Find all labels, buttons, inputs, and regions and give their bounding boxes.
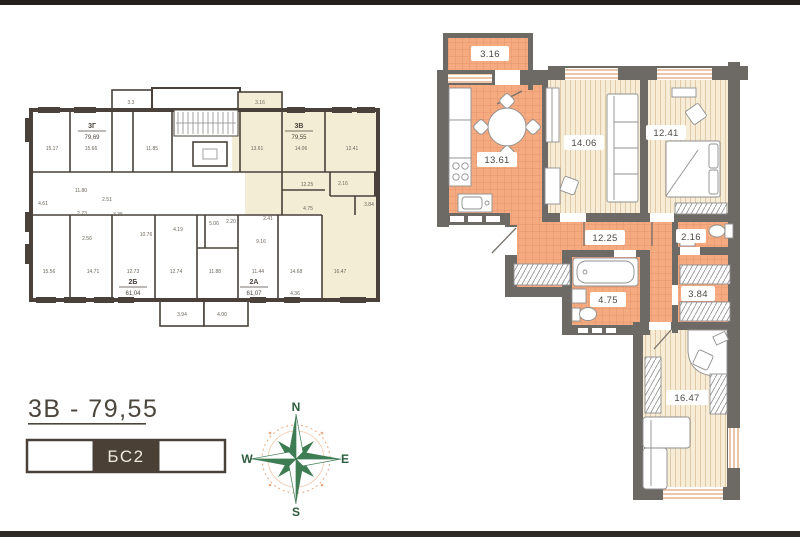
mini-label: 4.36 [290,291,300,297]
mini-label: 2.56 [82,236,92,242]
mini-label: 2.51 [102,197,112,203]
mini-stairs [174,110,238,136]
label-kitchen: 13.61 [484,155,509,166]
wardrobe [546,88,559,142]
footer: 3В - 79,55 БС2 [27,395,225,472]
compass-east: E [341,452,349,466]
apt-3v-name: 3В [295,123,304,130]
apartment-title: 3В - 79,55 [28,395,158,423]
sofa [643,417,690,448]
mini-label: 16.47 [334,269,347,275]
window-living [565,68,618,80]
compass-north: N [292,400,301,414]
compass-west: W [241,452,253,466]
apt-3g-name: 3Г [88,123,96,130]
mini-label: 12.25 [301,182,314,188]
mini-label: 12.41 [346,146,359,152]
mini-label: 3.94 [177,312,187,318]
mini-label: 11.44 [252,269,264,275]
mini-label: 10.76 [140,232,153,238]
compass-south: S [292,505,300,519]
mini-label: 2.73 [77,211,87,217]
mini-stairwell-bump [152,88,240,110]
stove [449,158,471,186]
mini-label: 14.06 [295,146,308,152]
apt-2a-area: 61,07 [246,291,262,297]
mini-label: 13.61 [251,146,264,152]
apt-2b-area: 61,04 [125,291,141,297]
mini-label: 3.84 [364,202,374,208]
wardrobe [710,374,727,414]
label-storage: 3.84 [688,289,708,300]
hall-wardrobe [514,264,570,285]
mini-label: 11.88 [209,269,221,275]
apt-2a-name: 2А [250,279,259,286]
storage-shelf [680,302,730,321]
mini-label: 15.66 [85,146,98,152]
label-bedroom2: 16.47 [674,393,699,404]
floor-plan-page: 3Г 79,69 3В 79,55 2Б 61,04 2А 61,07 15.1… [0,0,800,537]
mini-label: 14.71 [87,269,100,275]
apt-2b-name: 2Б [129,279,138,286]
mini-label: 2.20 [226,219,236,225]
mini-label: 4.19 [173,227,183,233]
mini-label: 5.06 [209,221,219,227]
title-underline [28,423,146,425]
sink [725,224,733,238]
mini-label: 4.61 [38,201,48,207]
mini-label: 2.16 [338,181,348,187]
window-bedroom2-side [728,428,740,468]
mini-floor-plan: 3Г 79,69 3В 79,55 2Б 61,04 2А 61,07 15.1… [25,88,380,326]
label-bedroom: 12.41 [653,128,678,139]
sink [572,289,586,303]
label-bathroom: 4.75 [598,295,618,306]
window-bedroom [657,68,712,80]
mini-label: 14.68 [290,269,303,275]
toilet [572,308,580,321]
label-wc: 2.16 [681,232,701,243]
mini-label: 12.73 [127,269,140,275]
mini-label: 4.75 [303,206,313,212]
label-hallway: 12.25 [592,233,617,244]
wardrobe [675,203,727,214]
mini-label: 15.17 [46,146,59,152]
floor-plan-canvas: 3Г 79,69 3В 79,55 2Б 61,04 2А 61,07 15.1… [0,0,800,537]
mini-label: 11.80 [75,188,87,194]
mini-label: 11.85 [146,146,158,152]
mini-label: 4.00 [217,312,227,318]
storage-shelf [680,265,730,284]
compass-rose: N S W E [241,400,349,519]
block-selector[interactable]: БС2 [27,440,225,472]
mini-label: 12.74 [170,269,183,275]
label-balcony: 3.16 [480,49,500,60]
mini-label: 15.56 [43,269,56,275]
mini-label: 3.35 [113,212,123,218]
apt-3v-area: 79,55 [291,135,307,141]
entry-doorway [505,227,517,255]
compass-star [251,414,341,504]
block-label[interactable]: БС2 [107,447,144,466]
dining-table [488,108,526,146]
mini-label: 9.16 [256,239,266,245]
desk [545,168,560,204]
label-living: 14.06 [571,138,596,149]
mini-label: 3.16 [255,100,265,106]
window-bedroom2-balcony [663,487,723,500]
mini-elevator [193,142,227,166]
mini-label: 2.41 [263,216,273,222]
detail-apartment-plan: 3.16 13.61 14.06 12.41 12.25 2.16 4.75 3… [437,33,748,500]
apt-3g-area: 79,69 [84,135,100,141]
dresser [672,88,696,97]
mini-label: 3.3 [128,100,135,106]
wardrobe [645,357,661,413]
